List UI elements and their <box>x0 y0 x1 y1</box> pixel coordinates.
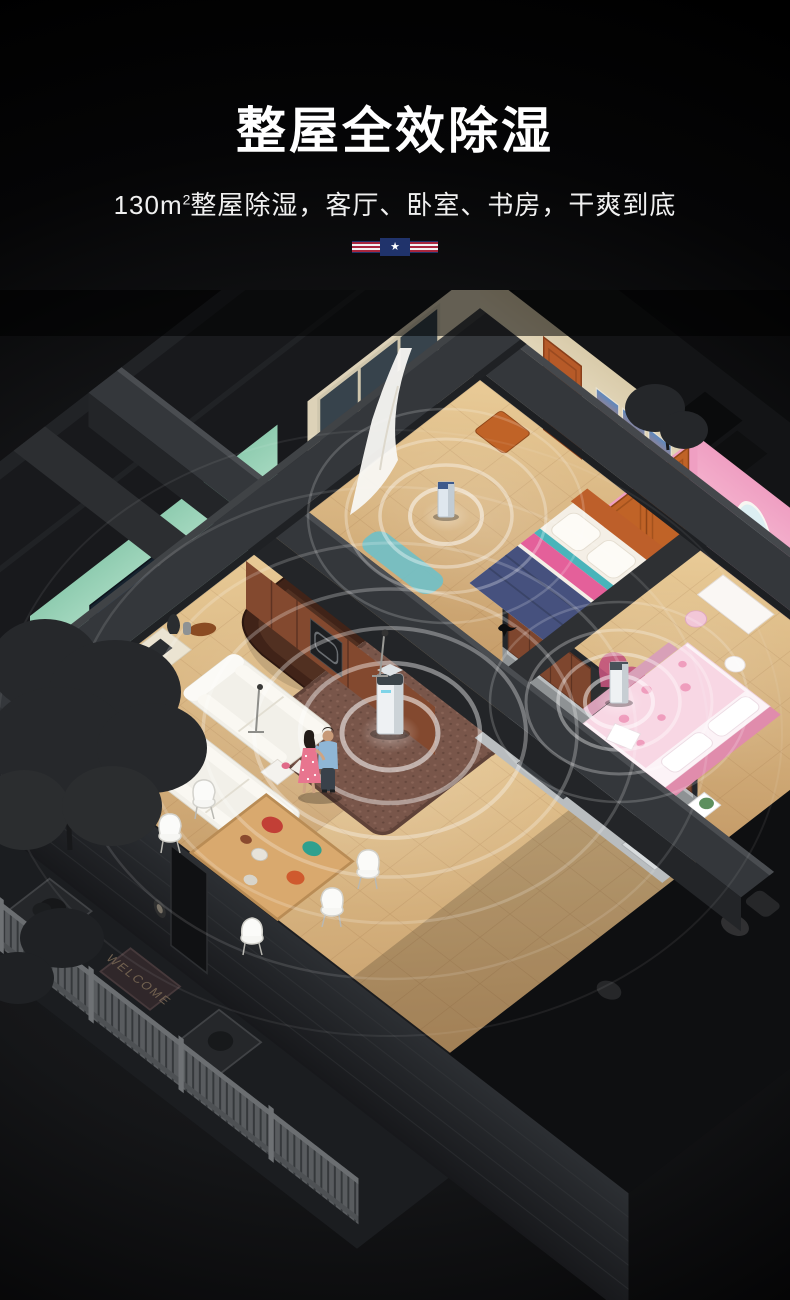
flag-left-stripes <box>352 241 380 253</box>
flag-divider: ★ <box>352 238 438 256</box>
section-title: 整屋全效除湿 <box>0 104 790 159</box>
section-header: 整屋全效除湿 130m2整屋除湿，客厅、卧室、书房，干爽到底 ★ <box>0 0 790 256</box>
section-subtitle: 130m2整屋除湿，客厅、卧室、书房，干爽到底 <box>0 185 790 222</box>
flag-center: ★ <box>380 238 410 256</box>
top-fade <box>0 290 790 336</box>
flag-right-stripes <box>410 241 438 253</box>
house-cutaway-scene: WELCOME <box>0 290 790 1300</box>
promo-section: 整屋全效除湿 130m2整屋除湿，客厅、卧室、书房，干爽到底 ★ <box>0 0 790 1300</box>
house-illustration: WELCOME <box>0 290 790 1300</box>
flag-star-icon: ★ <box>390 242 400 253</box>
subtitle-area: 130m <box>114 190 183 220</box>
subtitle-text: 整屋除湿，客厅、卧室、书房，干爽到底 <box>190 190 676 220</box>
